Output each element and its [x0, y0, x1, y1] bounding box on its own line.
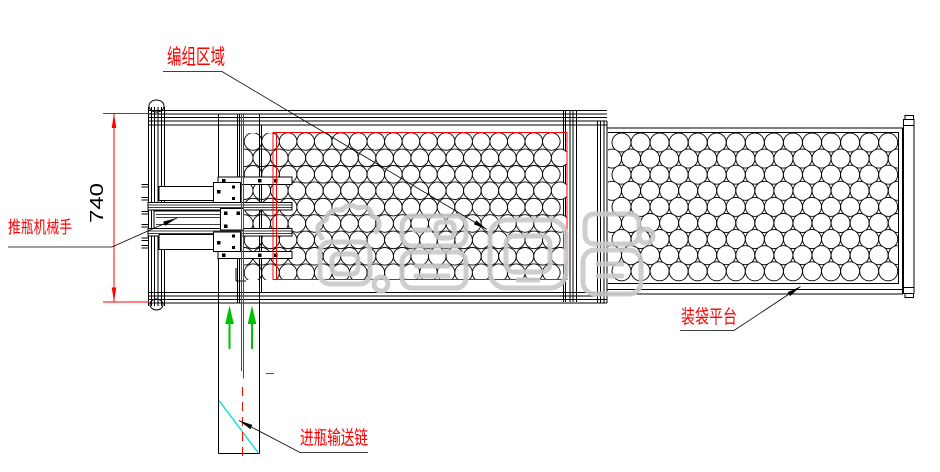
pusher-arm-middle	[154, 211, 222, 229]
flow-arrow-up-icon	[248, 306, 257, 325]
cad-drawing: 编组区域 推瓶机械手 装袋平台 进瓶输送链 740	[0, 0, 940, 472]
bottle-pattern	[235, 133, 907, 282]
infeed-channel	[219, 114, 262, 454]
infeed-chain-label: 进瓶输送链	[300, 427, 368, 449]
pusher-arm-top	[159, 187, 216, 201]
pusher-arm-bottom	[159, 235, 216, 250]
platform-end-plate	[904, 120, 915, 294]
bagging-platform-label: 装袋平台	[681, 306, 737, 328]
bagging-platform-bottles	[602, 133, 907, 281]
flow-arrow-up-icon	[225, 306, 234, 325]
channel-aux-diagonal	[219, 401, 258, 453]
grouping-area-label: 编组区域	[167, 46, 225, 69]
flow-arrows	[225, 306, 256, 350]
leader-arrow-icon	[239, 421, 253, 430]
leader-arrow-icon	[788, 287, 801, 297]
pusher-label: 推瓶机械手	[8, 218, 72, 237]
dimension-line-740	[103, 114, 151, 303]
dimension-arrow-down	[112, 288, 117, 303]
dimension-740-text: 740	[87, 183, 107, 223]
dimension-arrow-up	[112, 114, 117, 129]
drawing-surface: 编组区域 推瓶机械手 装袋平台 进瓶输送链 740	[0, 0, 940, 472]
